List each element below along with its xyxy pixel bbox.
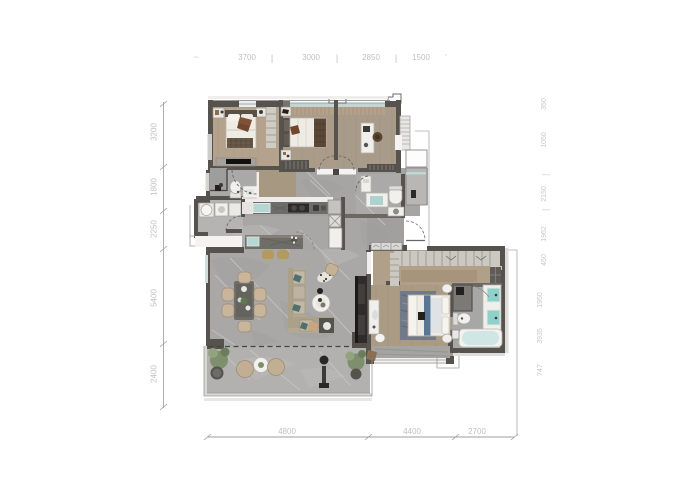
svg-text:2400: 2400	[150, 365, 159, 383]
svg-text:350: 350	[541, 98, 548, 110]
svg-text:1962: 1962	[541, 226, 548, 242]
svg-text:2700: 2700	[468, 427, 486, 436]
svg-text:—: —	[542, 205, 550, 214]
svg-text:1800: 1800	[150, 178, 159, 196]
svg-text:3935: 3935	[537, 328, 544, 344]
svg-text:~: ~	[194, 53, 199, 62]
svg-text:1950: 1950	[537, 292, 544, 308]
svg-text:|: |	[395, 53, 397, 63]
svg-text:2250: 2250	[150, 220, 159, 238]
svg-text:450: 450	[541, 254, 548, 266]
svg-text:4400: 4400	[403, 427, 421, 436]
svg-text:747: 747	[537, 364, 544, 376]
svg-text:|: |	[336, 53, 338, 63]
svg-text:3200: 3200	[150, 123, 159, 141]
svg-text:3700: 3700	[238, 53, 256, 62]
svg-text:2850: 2850	[362, 53, 380, 62]
svg-text:—: —	[542, 170, 550, 179]
svg-text:|: |	[271, 53, 273, 63]
svg-text:1500: 1500	[412, 53, 430, 62]
svg-text:1050: 1050	[541, 132, 548, 148]
svg-text:2150: 2150	[541, 186, 548, 202]
svg-text:4800: 4800	[278, 427, 296, 436]
svg-text:3000: 3000	[302, 53, 320, 62]
svg-text:5400: 5400	[150, 289, 159, 307]
